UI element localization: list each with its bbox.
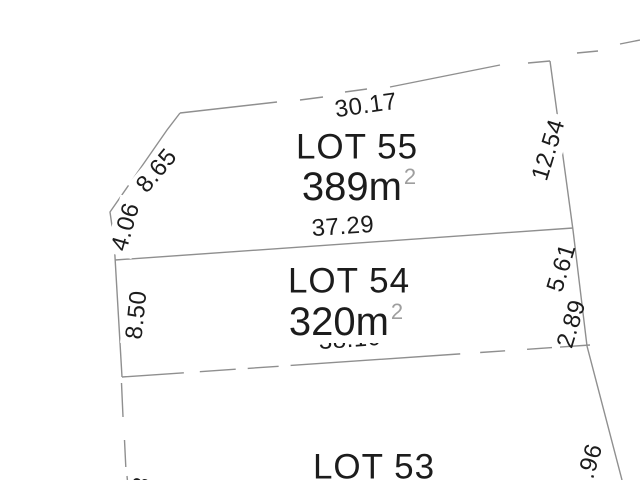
survey-plat-drawing: 38.10 30.17 LOT 55 389m2 37.29 12.54 8.6… [0, 0, 640, 480]
lot-55-area: 389m2 [296, 166, 422, 208]
lot-53-name: LOT 53 [307, 448, 441, 480]
lot-54-area: 320m2 [283, 301, 409, 343]
dim-lot55-lot54-edge: 37.29 [306, 211, 380, 244]
lot-55-area-value: 389m [302, 165, 402, 209]
west-boundary-dashed-line [122, 383, 128, 480]
lot-54-name: LOT 54 [282, 262, 416, 301]
lot-54-area-exponent: 2 [391, 299, 403, 324]
lot-54-area-value: 320m [289, 300, 389, 344]
lot-55-name: LOT 55 [290, 128, 424, 167]
lot-55-area-exponent: 2 [404, 164, 416, 189]
northeast-dashed-line [577, 40, 640, 53]
